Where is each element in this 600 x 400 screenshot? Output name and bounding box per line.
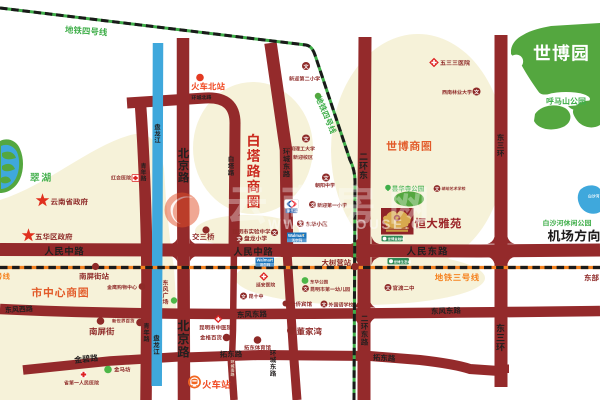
svg-text:WWW.YNHOUSE.C: WWW.YNHOUSE.C	[268, 217, 423, 232]
svg-text:*: *	[302, 233, 304, 238]
svg-text:*: *	[270, 258, 272, 263]
